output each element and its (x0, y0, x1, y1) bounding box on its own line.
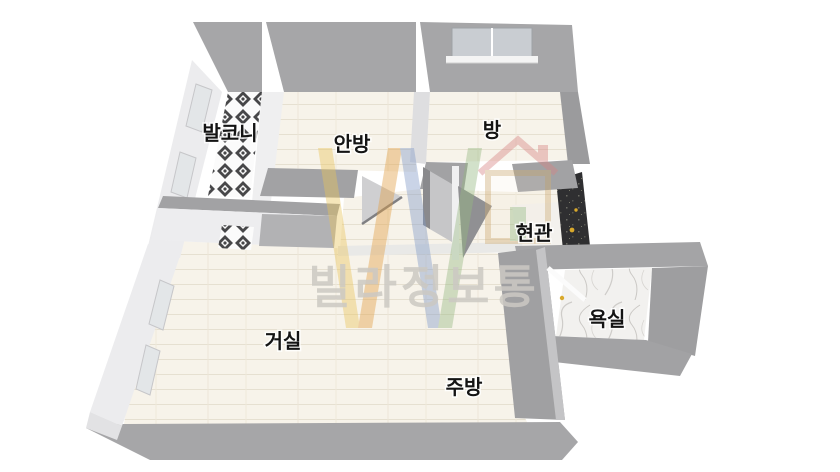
master-bedroom-top-wall (266, 22, 416, 92)
watermark-text: 빌라정보통 (308, 261, 540, 313)
floorplan-canvas: 빌라정보통 발코니 안방 방 현관 욕실 거실 주방 (0, 0, 840, 472)
room-label-balcony: 발코니 (202, 122, 257, 145)
balcony-door-tile-glimpse (218, 225, 254, 250)
room-label-kitchen: 주방 (446, 376, 483, 399)
living-top-wall-gray-part (259, 214, 337, 248)
living-bottom-wall (86, 422, 578, 460)
wall-gap-line (416, 22, 420, 92)
floorplan-image: 빌라정보통 발코니 안방 방 현관 욕실 거실 주방 (0, 0, 840, 472)
bathroom-right-wall (648, 266, 708, 356)
room-label-room: 방 (483, 119, 502, 142)
room-window (446, 28, 538, 63)
room-label-master-bedroom: 안방 (334, 133, 371, 156)
entry-pad-yellow-dot (574, 208, 577, 211)
master-bedroom-bottom-wall (260, 168, 358, 198)
room-label-bathroom: 욕실 (589, 308, 626, 331)
entry-pad-yellow-dot (570, 228, 575, 233)
wall-gap-line (262, 22, 266, 92)
room-label-living-room: 거실 (265, 330, 302, 353)
room-label-entrance: 현관 (516, 222, 553, 245)
door-handle (560, 296, 564, 300)
